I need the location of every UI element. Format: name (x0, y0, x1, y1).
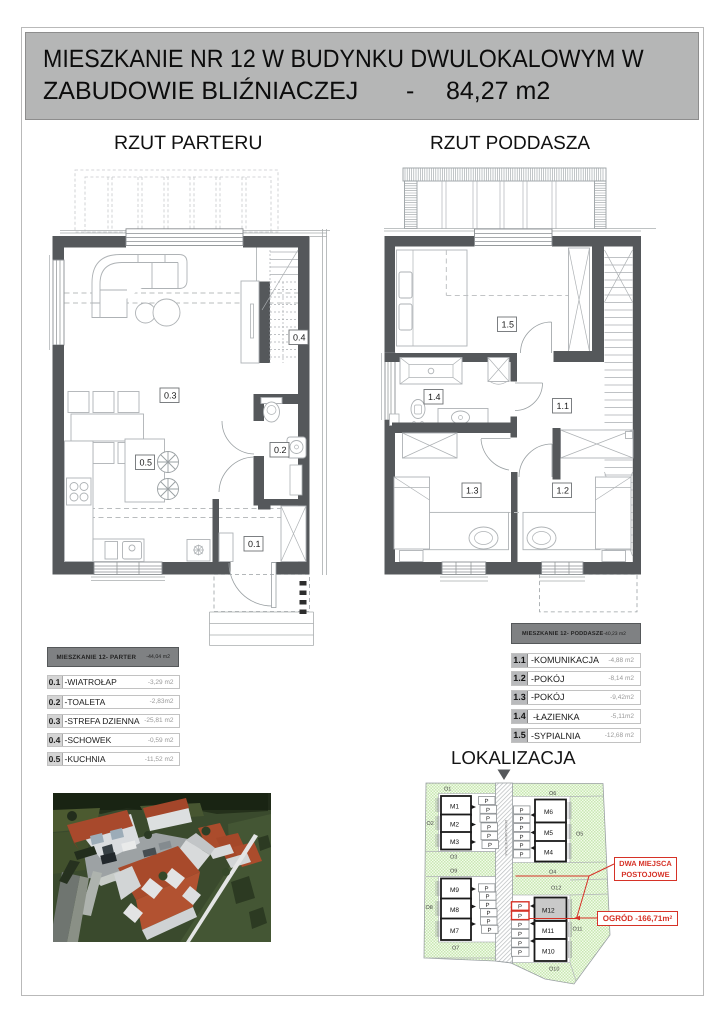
svg-text:M4: M4 (544, 850, 553, 857)
svg-text:1.1: 1.1 (557, 401, 570, 411)
svg-text:M8: M8 (450, 907, 459, 914)
svg-text:M7: M7 (450, 928, 459, 935)
svg-text:M11: M11 (542, 928, 555, 935)
svg-text:P: P (487, 910, 491, 917)
svg-text:M6: M6 (544, 809, 553, 816)
svg-text:O10: O10 (549, 967, 559, 973)
svg-text:O8: O8 (426, 905, 433, 911)
svg-text:O12: O12 (551, 886, 561, 892)
svg-text:M2: M2 (450, 822, 459, 829)
svg-text:M9: M9 (450, 887, 459, 894)
svg-text:0.5: 0.5 (140, 458, 153, 468)
svg-text:O3: O3 (450, 855, 457, 861)
svg-text:M3: M3 (450, 839, 459, 846)
svg-text:M1: M1 (450, 804, 459, 811)
svg-text:0.1: 0.1 (248, 539, 261, 549)
svg-text:P: P (518, 940, 522, 947)
svg-text:0.4: 0.4 (293, 333, 306, 343)
svg-text:P: P (520, 816, 524, 823)
svg-text:1.3: 1.3 (466, 486, 479, 496)
svg-text:P: P (518, 931, 522, 938)
svg-text:P: P (486, 902, 490, 909)
svg-text:1.5: 1.5 (502, 320, 515, 330)
svg-text:1.2: 1.2 (557, 486, 570, 496)
svg-text:P: P (486, 816, 490, 823)
svg-text:P: P (520, 825, 524, 832)
svg-text:P: P (485, 885, 489, 892)
svg-text:P: P (518, 950, 522, 957)
svg-text:O6: O6 (549, 791, 556, 797)
svg-text:DROGA WEWNĘTRZNA: DROGA WEWNĘTRZNA (504, 820, 508, 856)
svg-text:O5: O5 (576, 832, 583, 838)
svg-text:P: P (487, 824, 491, 831)
svg-text:P: P (486, 807, 490, 814)
svg-text:O4: O4 (549, 870, 556, 876)
svg-text:O9: O9 (450, 869, 457, 875)
svg-text:M12: M12 (542, 908, 555, 915)
svg-text:O7: O7 (452, 946, 459, 952)
svg-text:M10: M10 (542, 949, 555, 956)
svg-text:P: P (486, 894, 490, 901)
svg-text:0.3: 0.3 (164, 391, 177, 401)
svg-text:P: P (518, 904, 522, 911)
svg-text:0.2: 0.2 (274, 445, 287, 455)
svg-text:P: P (488, 927, 492, 934)
svg-text:P: P (520, 834, 524, 841)
svg-text:P: P (520, 807, 524, 814)
svg-text:O2: O2 (427, 821, 434, 827)
svg-text:O11: O11 (573, 927, 583, 933)
svg-text:1.4: 1.4 (428, 392, 441, 402)
svg-text:P: P (518, 922, 522, 929)
svg-text:P: P (488, 842, 492, 849)
svg-text:P: P (520, 843, 524, 850)
svg-text:P: P (487, 833, 491, 840)
svg-text:O1: O1 (444, 787, 451, 793)
svg-text:P: P (520, 851, 524, 858)
svg-text:P: P (487, 919, 491, 926)
svg-text:P: P (485, 798, 489, 805)
svg-text:M5: M5 (544, 830, 553, 837)
svg-text:P: P (518, 913, 522, 920)
